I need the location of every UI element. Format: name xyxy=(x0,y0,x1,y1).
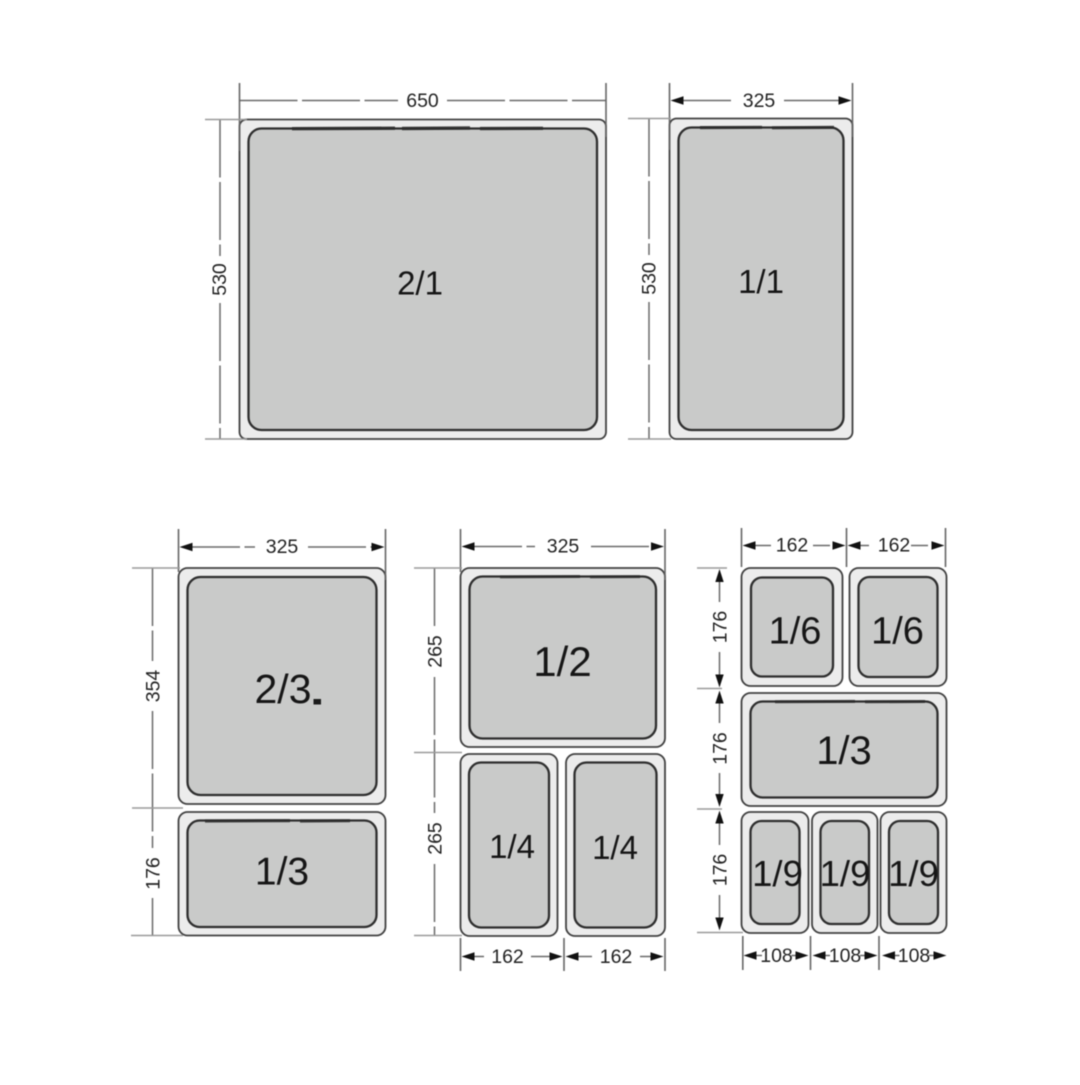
svg-text:1/9: 1/9 xyxy=(888,853,939,894)
svg-text:325: 325 xyxy=(743,90,776,112)
svg-text:2/3: 2/3 xyxy=(255,666,312,712)
svg-text:1/4: 1/4 xyxy=(592,829,638,866)
svg-text:108: 108 xyxy=(829,945,862,967)
svg-text:162: 162 xyxy=(600,946,633,968)
svg-text:162: 162 xyxy=(491,946,524,968)
svg-text:1/3: 1/3 xyxy=(255,851,309,894)
svg-text:1/6: 1/6 xyxy=(769,611,822,653)
svg-text:1/4: 1/4 xyxy=(489,828,535,865)
svg-text:1/9: 1/9 xyxy=(820,853,871,894)
svg-text:2/1: 2/1 xyxy=(397,265,443,302)
svg-text:325: 325 xyxy=(266,536,299,558)
svg-text:108: 108 xyxy=(760,945,793,967)
svg-text:530: 530 xyxy=(639,262,661,295)
svg-text:650: 650 xyxy=(406,90,439,112)
svg-text:1/9: 1/9 xyxy=(752,853,803,894)
svg-text:1/2: 1/2 xyxy=(533,638,591,685)
svg-text:162: 162 xyxy=(776,535,809,557)
svg-text:176: 176 xyxy=(710,611,732,644)
svg-text:265: 265 xyxy=(425,635,447,668)
svg-text:108: 108 xyxy=(898,945,931,967)
svg-text:530: 530 xyxy=(209,263,231,296)
svg-text:354: 354 xyxy=(143,670,165,703)
svg-text:1/1: 1/1 xyxy=(738,263,784,300)
svg-text:176: 176 xyxy=(710,854,732,887)
svg-text:325: 325 xyxy=(547,536,580,558)
svg-text:162: 162 xyxy=(878,535,911,557)
svg-text:1/6: 1/6 xyxy=(871,611,924,653)
svg-text:265: 265 xyxy=(425,822,447,855)
svg-text:176: 176 xyxy=(143,857,165,890)
svg-text:176: 176 xyxy=(710,732,732,765)
svg-text:1/3: 1/3 xyxy=(816,729,872,773)
